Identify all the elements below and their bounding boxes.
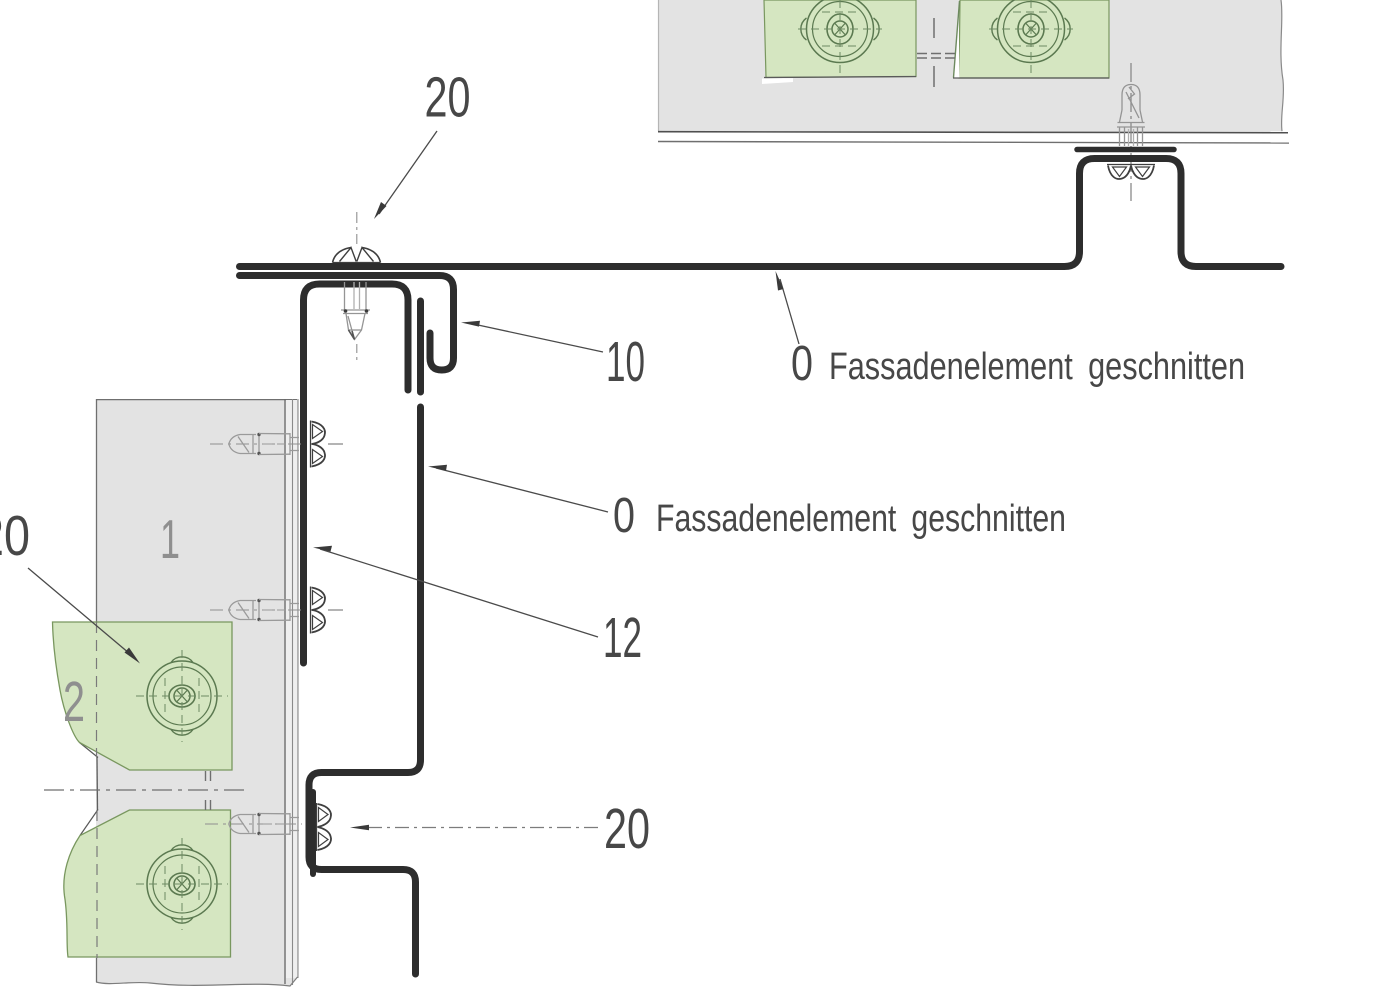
svg-text:10: 10	[606, 330, 645, 394]
svg-text:20: 20	[425, 66, 471, 130]
svg-text:20: 20	[0, 504, 30, 568]
svg-text:1: 1	[160, 508, 180, 570]
svg-text:2: 2	[63, 670, 85, 734]
svg-text:0: 0	[613, 489, 635, 543]
svg-text:Fassadenelement geschnitten: Fassadenelement geschnitten	[829, 346, 1245, 388]
svg-text:12: 12	[603, 606, 642, 670]
svg-text:Fassadenelement geschnitten: Fassadenelement geschnitten	[656, 498, 1066, 540]
svg-text:0: 0	[791, 337, 813, 391]
svg-text:20: 20	[604, 797, 650, 861]
